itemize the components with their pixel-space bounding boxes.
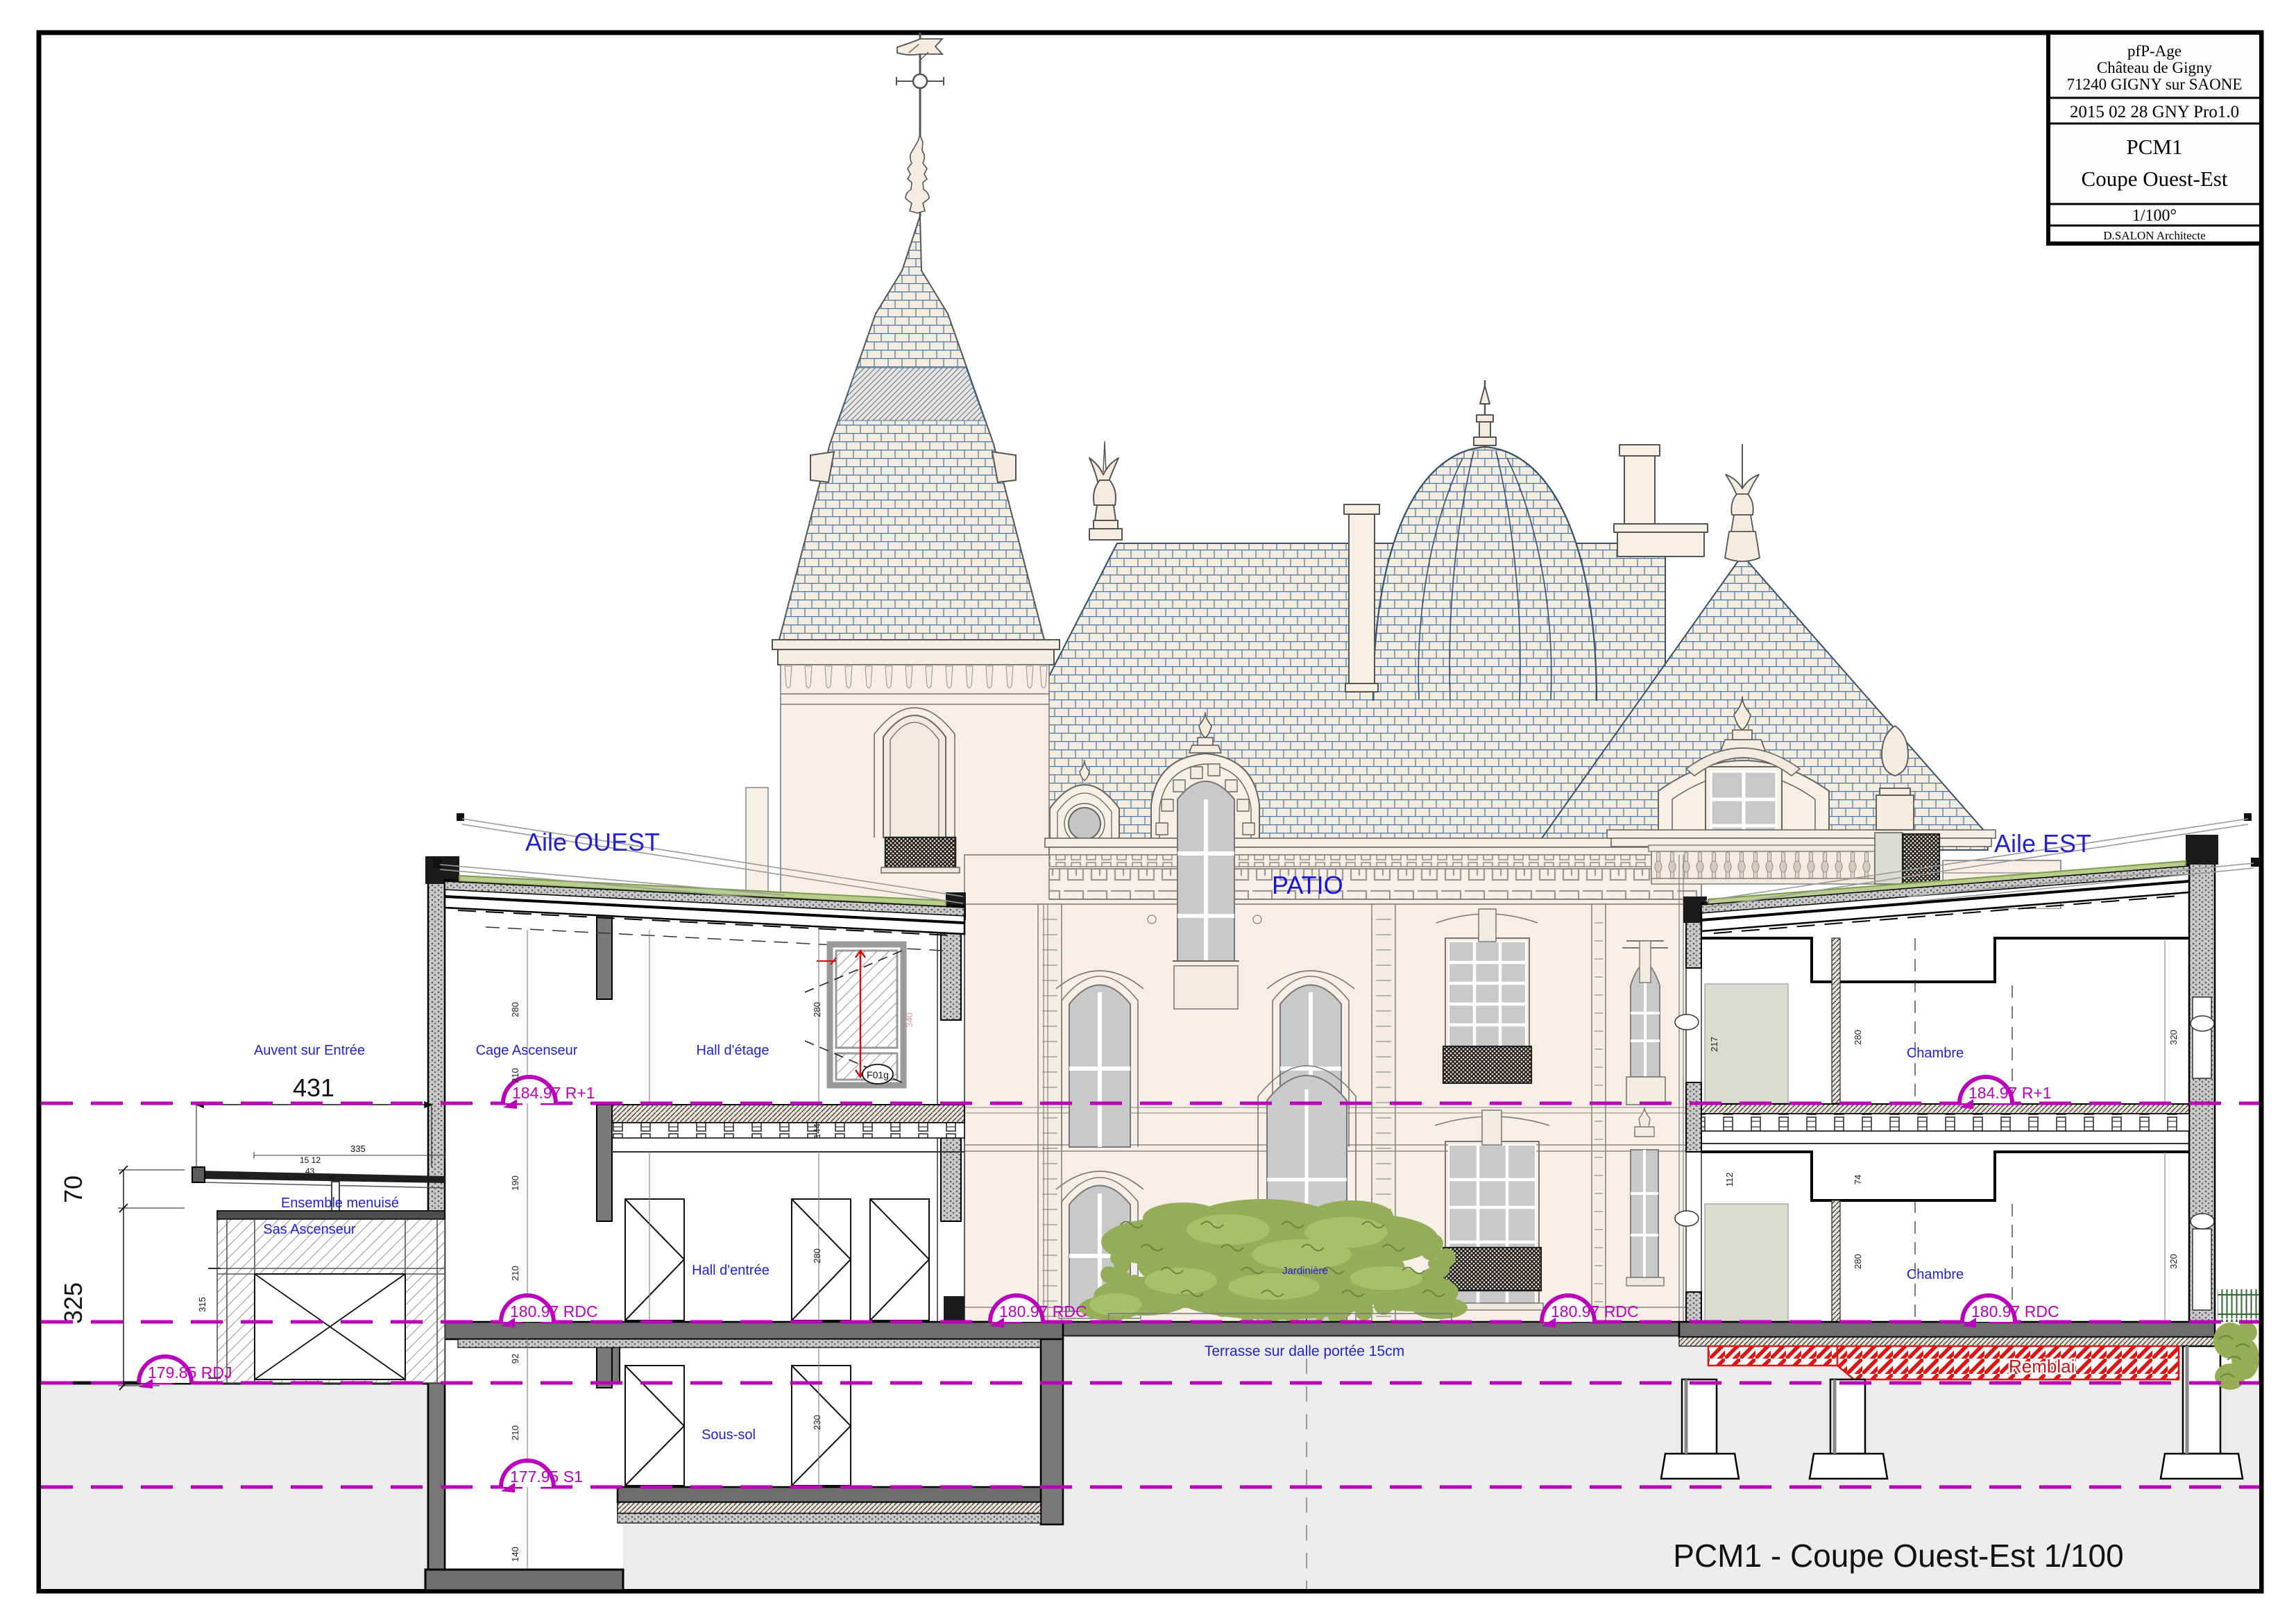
svg-text:Remblai: Remblai (2009, 1356, 2075, 1377)
svg-text:184.97 R+1: 184.97 R+1 (512, 1084, 595, 1102)
svg-text:431: 431 (293, 1073, 334, 1102)
svg-text:320: 320 (2168, 1030, 2179, 1045)
svg-text:1/100°: 1/100° (2132, 207, 2177, 225)
svg-text:217: 217 (1709, 1037, 1719, 1052)
svg-text:Sas Ascenseur: Sas Ascenseur (263, 1222, 356, 1237)
svg-text:Hall d'entrée: Hall d'entrée (692, 1263, 769, 1278)
svg-text:Hall d'étage: Hall d'étage (697, 1043, 769, 1058)
svg-text:Ensemble menuisé: Ensemble menuisé (281, 1196, 399, 1211)
svg-text:43: 43 (305, 1166, 315, 1176)
svg-text:210: 210 (510, 1068, 520, 1083)
svg-text:210: 210 (510, 1425, 520, 1441)
svg-text:92: 92 (510, 1354, 520, 1363)
svg-text:190: 190 (510, 1175, 520, 1191)
svg-text:Terrasse sur dalle portée 15cm: Terrasse sur dalle portée 15cm (1205, 1343, 1404, 1359)
svg-text:Aile EST: Aile EST (1994, 829, 2091, 858)
svg-text:280: 280 (1853, 1030, 1863, 1045)
svg-text:Coupe Ouest-Est: Coupe Ouest-Est (2082, 167, 2228, 191)
svg-text:180.97 RDC: 180.97 RDC (510, 1302, 598, 1320)
svg-text:180.97 RDC: 180.97 RDC (999, 1302, 1087, 1320)
svg-text:280: 280 (1853, 1254, 1863, 1269)
svg-text:Sous-sol: Sous-sol (701, 1427, 756, 1443)
svg-text:PCM1: PCM1 (2127, 135, 2183, 159)
svg-text:280: 280 (510, 1002, 520, 1017)
svg-text:74: 74 (1853, 1175, 1863, 1184)
svg-text:Cage Ascenseur: Cage Ascenseur (476, 1043, 578, 1058)
svg-text:140: 140 (510, 1547, 520, 1562)
svg-text:335: 335 (350, 1144, 366, 1154)
svg-text:Auvent sur Entrée: Auvent sur Entrée (254, 1043, 365, 1058)
svg-text:230: 230 (812, 1415, 822, 1430)
svg-text:PATIO: PATIO (1272, 871, 1343, 899)
svg-text:Chambre: Chambre (1907, 1046, 1964, 1061)
svg-text:180.97 RDC: 180.97 RDC (1551, 1302, 1639, 1320)
svg-text:210: 210 (510, 1266, 520, 1281)
svg-text:320: 320 (2168, 1254, 2179, 1269)
svg-text:71240 GIGNY sur SAONE: 71240 GIGNY sur SAONE (2067, 76, 2243, 93)
svg-text:pfP-Age: pfP-Age (2127, 42, 2182, 60)
svg-text:15 12: 15 12 (300, 1155, 321, 1165)
svg-text:144: 144 (812, 1123, 822, 1139)
svg-text:2015 02 28 GNY Pro1.0: 2015 02 28 GNY Pro1.0 (2070, 103, 2239, 121)
svg-text:70: 70 (59, 1175, 87, 1203)
svg-text:180.97 RDC: 180.97 RDC (1971, 1302, 2059, 1320)
svg-text:D.SALON Architecte: D.SALON Architecte (2103, 229, 2205, 242)
svg-text:Chambre: Chambre (1907, 1267, 1964, 1282)
svg-text:Jardinière: Jardinière (1282, 1265, 1328, 1277)
svg-text:179.85 RDJ: 179.85 RDJ (148, 1363, 232, 1382)
svg-text:Château de Gigny: Château de Gigny (2097, 59, 2213, 76)
svg-text:PCM1 - Coupe Ouest-Est 1/100: PCM1 - Coupe Ouest-Est 1/100 (1673, 1538, 2123, 1574)
svg-text:112: 112 (1724, 1173, 1735, 1187)
svg-text:F01g: F01g (867, 1069, 889, 1080)
svg-text:280: 280 (812, 1248, 822, 1264)
svg-text:325: 325 (59, 1282, 87, 1324)
svg-text:177.95 S1: 177.95 S1 (510, 1468, 583, 1486)
svg-text:184.97 R+1: 184.97 R+1 (1968, 1084, 2052, 1102)
svg-text:280: 280 (812, 1002, 822, 1017)
svg-text:Aile OUEST: Aile OUEST (525, 828, 660, 856)
svg-text:340: 340 (904, 1012, 915, 1028)
svg-text:315: 315 (197, 1297, 207, 1312)
svg-text:34: 34 (326, 1172, 336, 1182)
